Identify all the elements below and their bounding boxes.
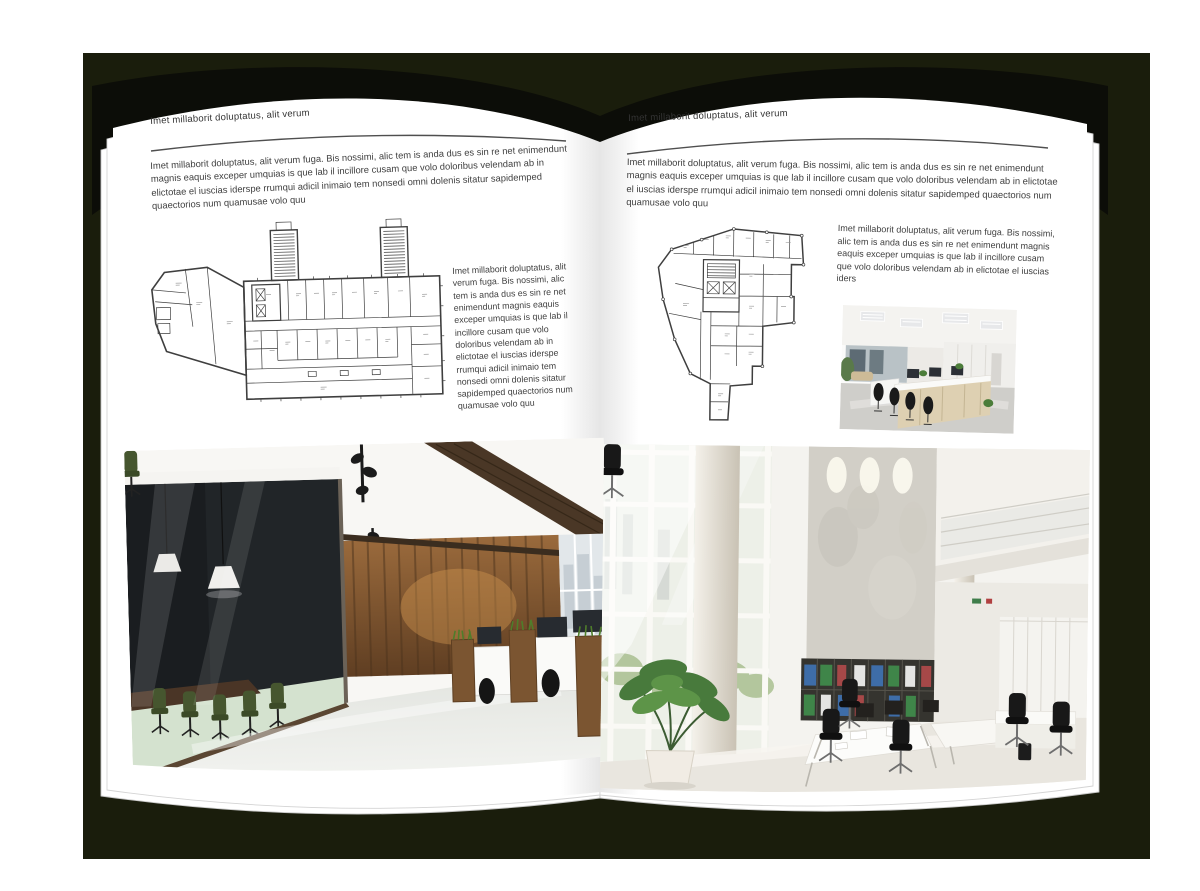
right-side-paragraph: Imet millaborit doluptatus, alit verum f… [836,222,1060,291]
brochure-mockup-stage: Imet millaborit doluptatus, alit verum I… [0,0,1200,891]
right-floor-plan [640,213,840,427]
left-floor-plan [146,216,448,416]
small-office-photo [840,305,1017,434]
right-office-photo [600,444,1090,796]
left-office-photo [124,438,613,785]
left-side-paragraph: Imet millaborit doluptatus, alit verum f… [452,260,576,413]
right-intro-paragraph: Imet millaborit doluptatus, alit verum f… [626,155,1059,215]
